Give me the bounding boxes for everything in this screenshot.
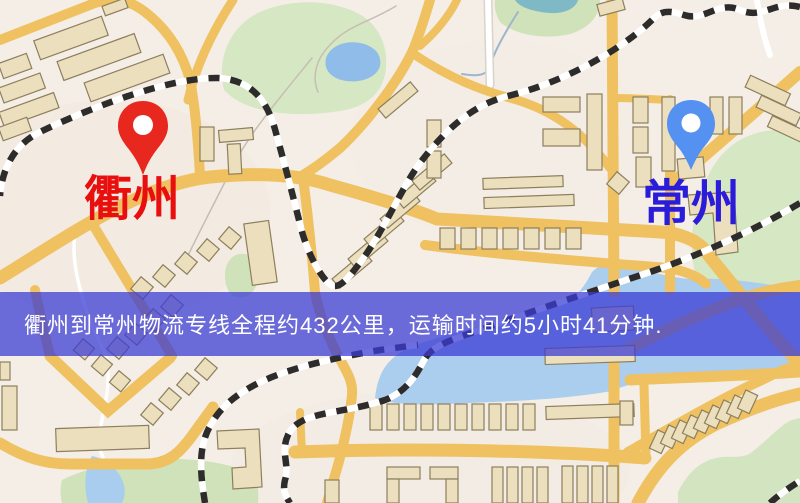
map-canvas: [0, 0, 800, 503]
pond: [325, 42, 380, 81]
route-info-banner: 衢州到常州物流专线全程约432公里，运输时间约5小时41分钟.: [0, 292, 800, 356]
destination-city-label: 常州: [642, 179, 740, 228]
origin-pin-icon: [116, 100, 170, 176]
route-info-text: 衢州到常州物流专线全程约432公里，运输时间约5小时41分钟.: [0, 308, 663, 340]
origin-city-label: 衢州: [84, 176, 180, 224]
destination-pin-icon: [665, 99, 717, 171]
map: 衢州 常州 衢州到常州物流专线全程约432公里，运输时间约5小时41分钟.: [0, 0, 800, 503]
